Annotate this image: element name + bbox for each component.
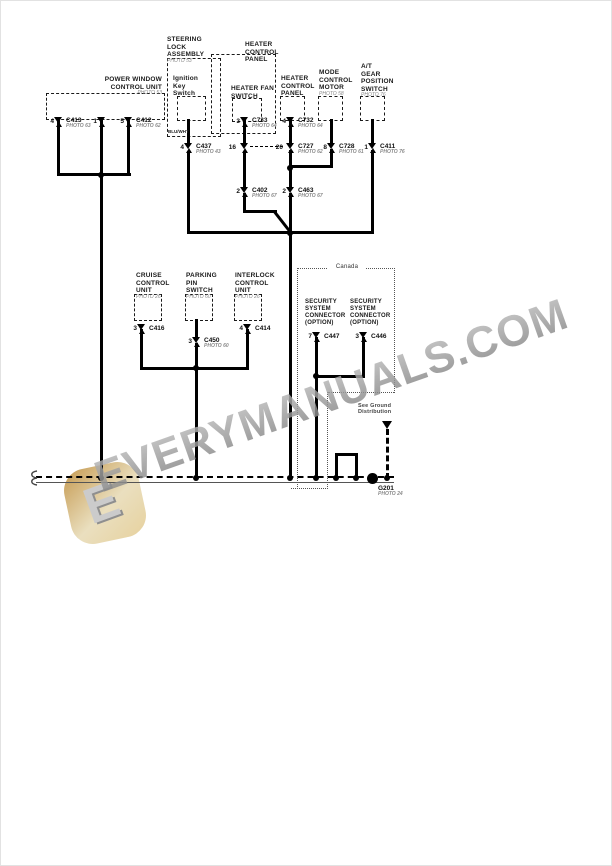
c412-label: C412 PHOTO 62 <box>136 117 161 130</box>
c437-connector-icon <box>184 143 193 154</box>
c414-label: C414 <box>255 325 271 332</box>
c463-pin: 2 <box>272 188 286 195</box>
wire-segment <box>243 151 246 189</box>
label-security-system-connector-1: SECURITY SYSTEM CONNECTOR (OPTION) <box>305 292 345 326</box>
c412-pin: 5 <box>110 118 124 125</box>
c732-pin: 4 <box>272 118 286 125</box>
canada-region-left <box>297 268 298 489</box>
c437-label: C437 PHOTO 43 <box>196 143 221 156</box>
manual-page: E POWER WINDOW CONTROL UNIT PHOTO 53 STE… <box>0 0 612 866</box>
c728-connector-icon <box>327 143 336 154</box>
hcp-pin16-connector-icon <box>240 143 249 154</box>
junction-dot <box>353 475 359 481</box>
c447-pin: 7 <box>298 333 312 340</box>
wire-segment <box>330 119 333 145</box>
wire-segment <box>187 231 374 234</box>
label-at-gear-position-switch: A/T GEAR POSITION SWITCH PHOTO 76 <box>361 56 394 107</box>
c446-label: C446 <box>371 333 387 340</box>
c416-label: C416 <box>149 325 165 332</box>
ground-bus-solid <box>36 482 394 483</box>
c463-label: C463 PHOTO 67 <box>298 187 323 200</box>
wire-color-label: BLU/WHT <box>168 129 189 134</box>
c450-pin: 3 <box>178 338 192 345</box>
c414-pin: 4 <box>229 325 243 332</box>
junction-dot <box>193 365 199 371</box>
c412-connector-icon <box>124 117 133 128</box>
c447-connector-icon <box>312 332 321 343</box>
wire-segment <box>195 367 249 370</box>
junction-dot <box>193 475 199 481</box>
wire-segment <box>195 319 198 338</box>
c416-connector-icon <box>137 324 146 335</box>
ground-bus-dashed <box>36 476 394 478</box>
junction-dot <box>287 230 293 236</box>
canada-region-bottom <box>291 488 328 489</box>
label-parking-pin-switch: PARKING PIN SWITCH PHOTO 60 <box>186 265 217 308</box>
c450-connector-icon <box>192 337 201 348</box>
c463-connector-icon <box>286 187 295 198</box>
pw-pin1: 1 <box>83 118 97 125</box>
c414-connector-icon <box>243 324 252 335</box>
c413-pin: 4 <box>40 118 54 125</box>
c732-connector-icon <box>286 117 295 128</box>
label-mode-control-motor: MODE CONTROL MOTOR PHOTO 58 <box>319 62 353 105</box>
canada-region-label: Canada <box>328 264 366 271</box>
c728-pin: 8 <box>313 144 327 151</box>
label-cruise-control-unit: CRUISE CONTROL UNIT PHOTO 26 <box>136 265 170 308</box>
c446-connector-icon <box>359 332 368 343</box>
label-steering-lock-assembly: STEERING LOCK ASSEMBLY PHOTO 53 <box>167 29 204 72</box>
label-interlock-control-unit: INTERLOCK CONTROL UNIT PHOTO 26 <box>235 265 275 308</box>
ground-lead-arrow-icon <box>382 421 392 429</box>
c411-label: C411 PHOTO 76 <box>380 143 405 156</box>
c416-pin: 3 <box>123 325 137 332</box>
c447-label: C447 <box>324 333 340 340</box>
c733-pin: 3 <box>226 118 240 125</box>
c733-connector-icon <box>240 117 249 128</box>
wire-segment <box>371 150 374 234</box>
g201-label: G201 PHOTO 24 <box>378 485 403 498</box>
wire-segment <box>187 151 190 234</box>
wire-segment <box>289 165 333 168</box>
c727-pin: 20 <box>269 144 283 151</box>
c402-connector-icon <box>240 187 249 198</box>
junction-dot <box>333 475 339 481</box>
wire-segment <box>57 173 131 176</box>
junction-dot <box>287 165 293 171</box>
label-power-window-control-unit: POWER WINDOW CONTROL UNIT PHOTO 53 <box>62 69 162 105</box>
bus-end-hook <box>27 470 39 486</box>
hcp-pin16: 16 <box>222 144 236 151</box>
wire-segment <box>371 119 374 145</box>
junction-dot <box>313 475 319 481</box>
ground-point-dot <box>367 473 378 484</box>
label-heater-control-panel-assembly: HEATER CONTROL PANEL <box>245 34 279 64</box>
ground-lead-dashed-wire <box>386 429 389 479</box>
junction-dot <box>287 475 293 481</box>
label-heater-fan-switch: HEATER FAN SWITCH <box>231 78 274 100</box>
c437-pin: 4 <box>170 144 184 151</box>
label-ignition-key-switch: Ignition Key Switch <box>173 68 198 98</box>
c450-label: C450 PHOTO 60 <box>204 337 229 350</box>
label-heater-control-panel: HEATER CONTROL PANEL <box>281 68 315 98</box>
label-security-system-connector-2: SECURITY SYSTEM CONNECTOR (OPTION) <box>350 292 390 326</box>
c727-connector-icon <box>286 143 295 154</box>
pw-pin1-connector-icon <box>97 117 106 128</box>
c732-label: C732 PHOTO 64 <box>298 117 323 130</box>
junction-dot <box>384 475 390 481</box>
wire-segment <box>140 329 143 369</box>
c446-pin: 3 <box>345 333 359 340</box>
c411-pin: 1 <box>354 144 368 151</box>
c411-connector-icon <box>368 143 377 154</box>
wire-segment <box>246 329 249 370</box>
box-ignition-key-switch <box>177 96 206 121</box>
c402-pin: 2 <box>226 188 240 195</box>
junction-dot <box>98 172 104 178</box>
wire-segment <box>140 367 199 370</box>
c413-connector-icon <box>54 117 63 128</box>
